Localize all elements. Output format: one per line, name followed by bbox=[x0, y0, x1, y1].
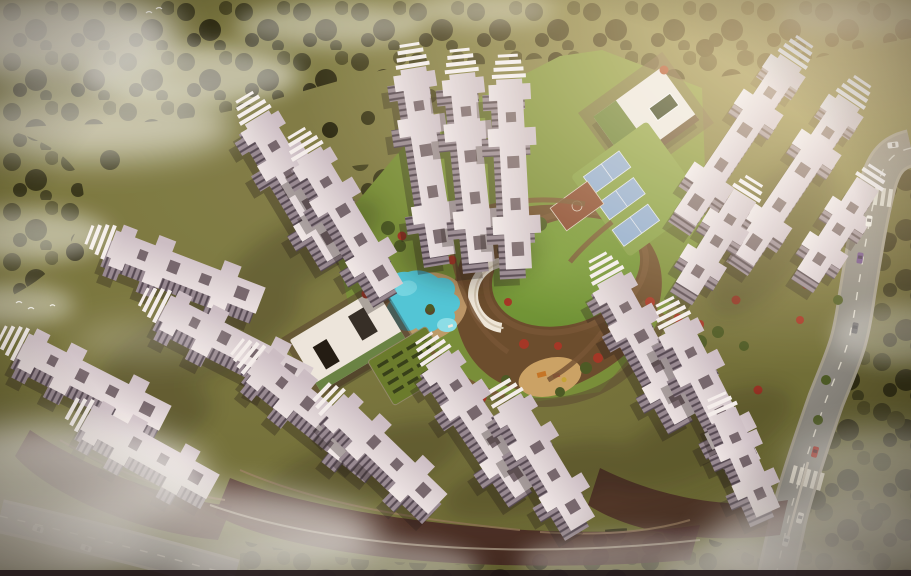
bottom-border-strip bbox=[0, 570, 911, 576]
township-scene bbox=[0, 0, 911, 576]
vignette-overlay bbox=[0, 0, 911, 576]
aerial-render bbox=[0, 0, 911, 576]
